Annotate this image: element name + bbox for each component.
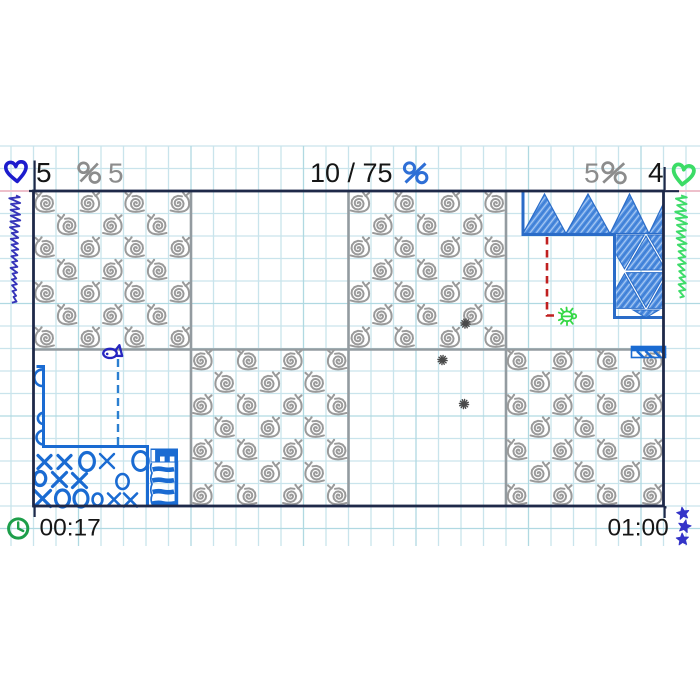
svg-text:10 / 75: 10 / 75 bbox=[310, 158, 393, 188]
svg-text:00:17: 00:17 bbox=[40, 515, 101, 542]
svg-text:4: 4 bbox=[648, 157, 664, 188]
svg-text:01:00: 01:00 bbox=[608, 515, 669, 542]
svg-text:5: 5 bbox=[584, 158, 600, 189]
svg-text:5: 5 bbox=[36, 157, 52, 188]
svg-text:5: 5 bbox=[108, 158, 124, 189]
